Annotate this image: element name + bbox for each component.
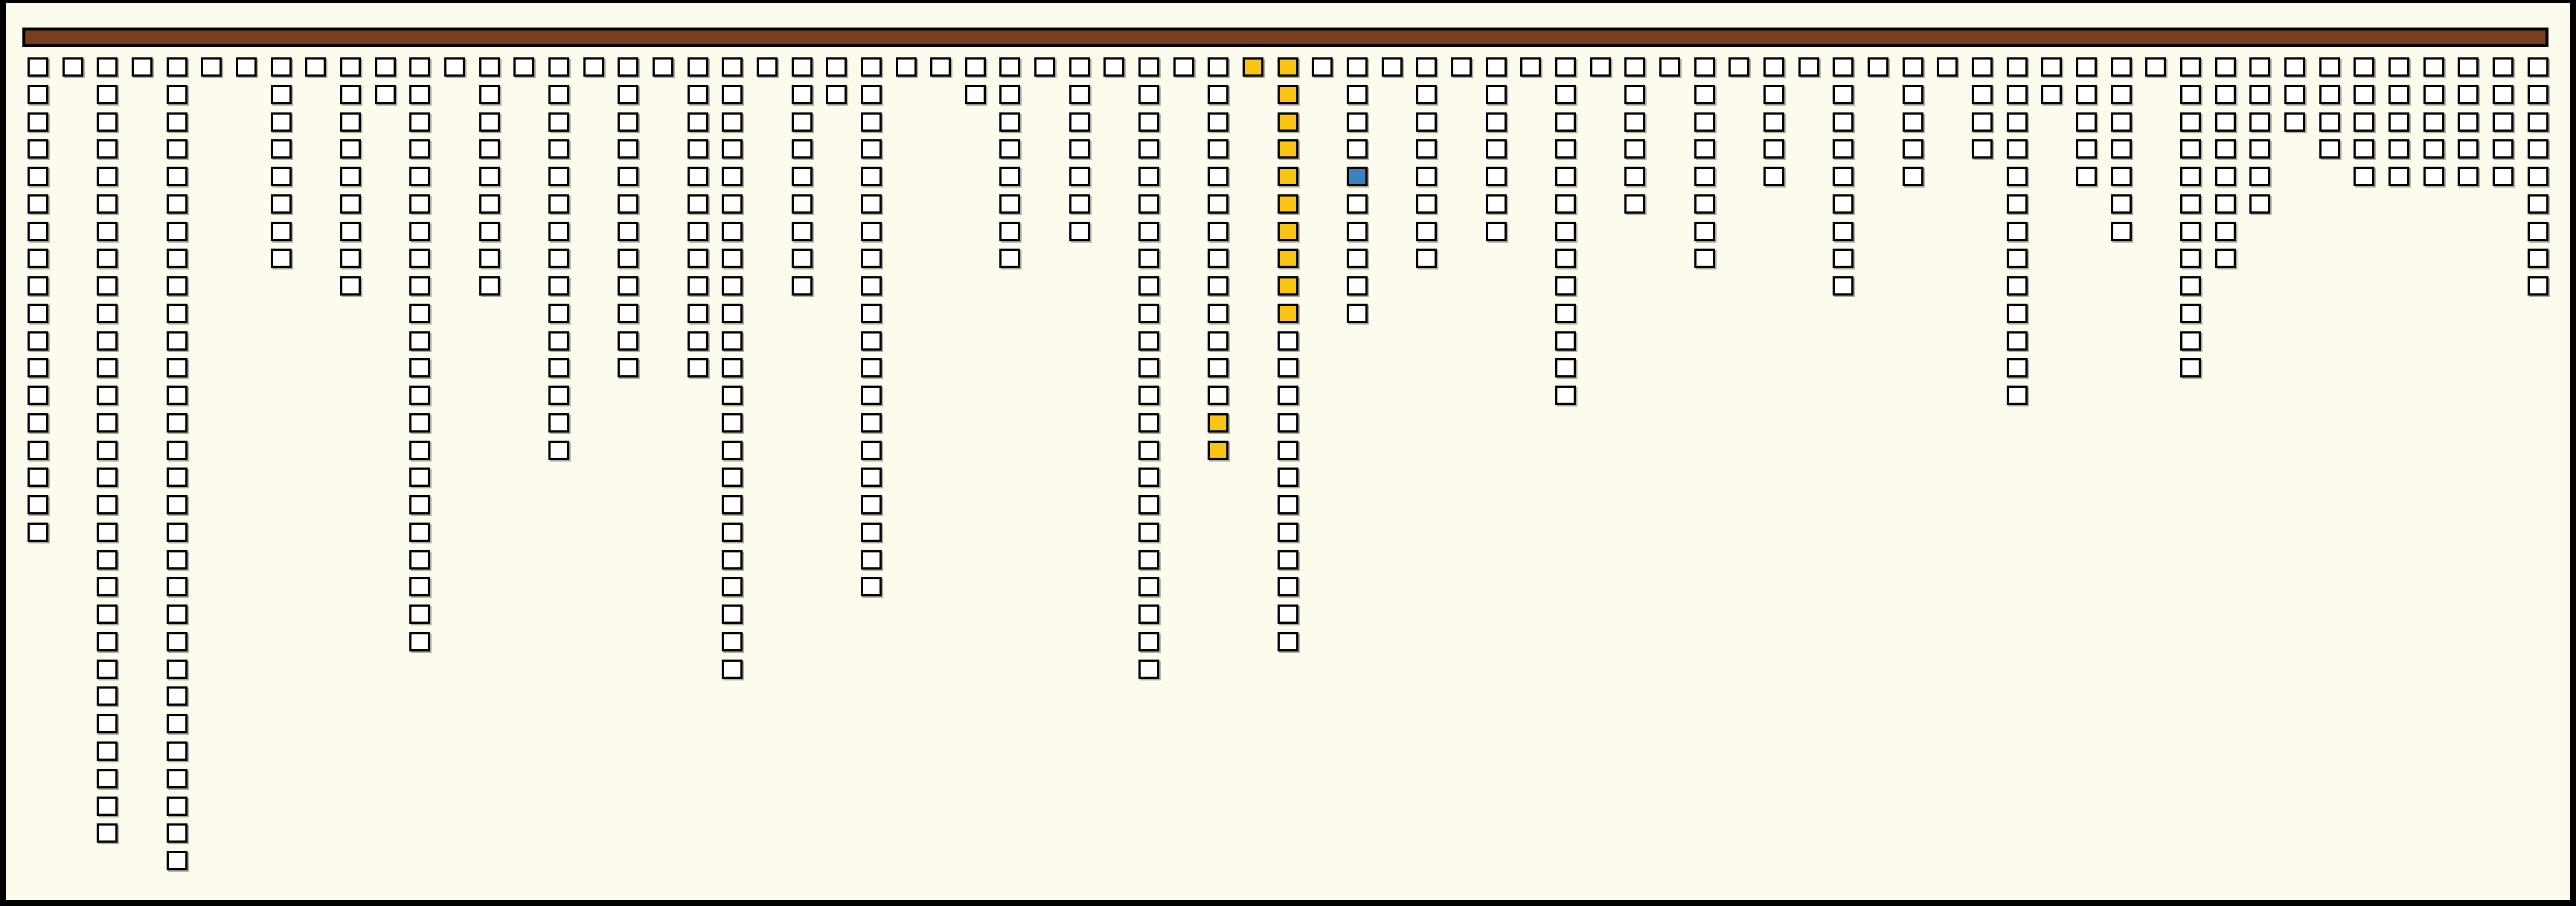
- grid-cell[interactable]: [2007, 249, 2028, 268]
- grid-cell[interactable]: [1208, 358, 1228, 377]
- grid-cell[interactable]: [792, 57, 813, 77]
- grid-cell[interactable]: [1555, 222, 1576, 241]
- grid-cell[interactable]: [722, 222, 743, 241]
- grid-cell[interactable]: [97, 331, 118, 351]
- grid-cell[interactable]: [1278, 468, 1298, 487]
- grid-cell[interactable]: [1278, 495, 1298, 514]
- grid-cell[interactable]: [861, 358, 882, 377]
- grid-cell[interactable]: [2319, 139, 2340, 159]
- grid-cell[interactable]: [2007, 304, 2028, 323]
- grid-cell[interactable]: [1278, 386, 1298, 405]
- grid-cell[interactable]: [999, 85, 1020, 104]
- grid-cell[interactable]: [167, 632, 188, 651]
- grid-cell[interactable]: [167, 714, 188, 733]
- grid-cell[interactable]: [1972, 85, 1993, 104]
- grid-cell[interactable]: [1173, 57, 1194, 77]
- grid-cell[interactable]: [2111, 222, 2132, 241]
- grid-cell[interactable]: [2180, 112, 2201, 132]
- grid-cell[interactable]: [618, 57, 638, 77]
- grid-cell[interactable]: [97, 686, 118, 706]
- grid-cell[interactable]: [97, 139, 118, 159]
- grid-cell[interactable]: [167, 331, 188, 351]
- grid-cell[interactable]: [861, 495, 882, 514]
- grid-cell[interactable]: [97, 741, 118, 761]
- grid-cell[interactable]: [861, 413, 882, 433]
- grid-cell[interactable]: [548, 222, 569, 241]
- grid-cell[interactable]: [861, 304, 882, 323]
- grid-cell[interactable]: [618, 85, 638, 104]
- grid-cell[interactable]: [2493, 57, 2513, 77]
- grid-cell[interactable]: [28, 331, 48, 351]
- grid-cell[interactable]: [999, 139, 1020, 159]
- grid-cell[interactable]: [722, 112, 743, 132]
- grid-cell[interactable]: [2284, 85, 2305, 104]
- grid-cell[interactable]: [2007, 222, 2028, 241]
- grid-cell[interactable]: [167, 249, 188, 268]
- grid-cell[interactable]: [167, 495, 188, 514]
- grid-cell[interactable]: [1903, 167, 1923, 186]
- grid-cell[interactable]: [1138, 604, 1159, 624]
- grid-cell[interactable]: [1278, 577, 1298, 596]
- grid-cell[interactable]: [2076, 139, 2097, 159]
- grid-cell[interactable]: [2076, 57, 2097, 77]
- grid-cell[interactable]: [1208, 386, 1228, 405]
- grid-cell[interactable]: [97, 550, 118, 570]
- grid-cell[interactable]: [97, 386, 118, 405]
- grid-cell[interactable]: [2528, 276, 2548, 296]
- grid-cell[interactable]: [1763, 57, 1784, 77]
- grid-cell[interactable]: [1138, 523, 1159, 542]
- grid-cell[interactable]: [688, 112, 708, 132]
- grid-cell[interactable]: [1416, 167, 1437, 186]
- grid-cell[interactable]: [861, 441, 882, 460]
- grid-cell[interactable]: [2528, 222, 2548, 241]
- grid-cell[interactable]: [97, 660, 118, 679]
- grid-cell[interactable]: [409, 550, 430, 570]
- grid-cell[interactable]: [2354, 112, 2374, 132]
- grid-cell[interactable]: [1278, 358, 1298, 377]
- grid-cell[interactable]: [97, 495, 118, 514]
- grid-cell[interactable]: [2319, 112, 2340, 132]
- grid-cell[interactable]: [1555, 57, 1576, 77]
- grid-cell[interactable]: [1278, 604, 1298, 624]
- top-bar[interactable]: [22, 28, 2548, 47]
- grid-cell[interactable]: [688, 139, 708, 159]
- grid-cell[interactable]: [340, 276, 361, 296]
- grid-cell[interactable]: [2215, 139, 2236, 159]
- grid-cell[interactable]: [722, 523, 743, 542]
- grid-cell[interactable]: [757, 57, 778, 77]
- grid-cell[interactable]: [1138, 386, 1159, 405]
- grid-cell[interactable]: [1555, 139, 1576, 159]
- grid-cell[interactable]: [167, 57, 188, 77]
- grid-cell[interactable]: [2493, 139, 2513, 159]
- grid-cell[interactable]: [722, 632, 743, 651]
- grid-cell[interactable]: [2007, 331, 2028, 351]
- grid-cell[interactable]: [97, 249, 118, 268]
- grid-cell[interactable]: [479, 112, 500, 132]
- grid-cell[interactable]: [167, 441, 188, 460]
- grid-cell[interactable]: [2111, 85, 2132, 104]
- grid-cell[interactable]: [1694, 167, 1715, 186]
- grid-cell[interactable]: [722, 358, 743, 377]
- grid-cell[interactable]: [1624, 194, 1645, 214]
- grid-cell[interactable]: [201, 57, 222, 77]
- grid-cell[interactable]: [167, 304, 188, 323]
- grid-cell[interactable]: [1138, 57, 1159, 77]
- grid-cell[interactable]: [1833, 194, 1853, 214]
- grid-cell[interactable]: [1138, 85, 1159, 104]
- grid-cell[interactable]: [63, 57, 83, 77]
- grid-cell[interactable]: [167, 194, 188, 214]
- grid-cell[interactable]: [2111, 167, 2132, 186]
- grid-cell[interactable]: [97, 632, 118, 651]
- grid-cell[interactable]: [340, 167, 361, 186]
- grid-cell[interactable]: [1138, 358, 1159, 377]
- grid-cell[interactable]: [2319, 85, 2340, 104]
- grid-cell[interactable]: [28, 112, 48, 132]
- highlighted-cell[interactable]: [1278, 276, 1298, 296]
- grid-cell[interactable]: [1555, 386, 1576, 405]
- grid-cell[interactable]: [167, 604, 188, 624]
- grid-cell[interactable]: [1278, 413, 1298, 433]
- grid-cell[interactable]: [2180, 358, 2201, 377]
- grid-cell[interactable]: [28, 358, 48, 377]
- grid-cell[interactable]: [2249, 139, 2270, 159]
- grid-cell[interactable]: [28, 249, 48, 268]
- grid-cell[interactable]: [409, 358, 430, 377]
- grid-cell[interactable]: [167, 523, 188, 542]
- grid-cell[interactable]: [2111, 57, 2132, 77]
- grid-cell[interactable]: [618, 249, 638, 268]
- grid-cell[interactable]: [1138, 194, 1159, 214]
- grid-cell[interactable]: [97, 577, 118, 596]
- grid-cell[interactable]: [409, 632, 430, 651]
- grid-cell[interactable]: [2423, 167, 2444, 186]
- grid-cell[interactable]: [722, 57, 743, 77]
- grid-cell[interactable]: [2180, 249, 2201, 268]
- grid-cell[interactable]: [1555, 276, 1576, 296]
- grid-cell[interactable]: [792, 222, 813, 241]
- grid-cell[interactable]: [1624, 112, 1645, 132]
- grid-cell[interactable]: [2215, 249, 2236, 268]
- highlighted-cell[interactable]: [1278, 222, 1298, 241]
- grid-cell[interactable]: [548, 304, 569, 323]
- grid-cell[interactable]: [1208, 167, 1228, 186]
- grid-cell[interactable]: [688, 304, 708, 323]
- grid-cell[interactable]: [1903, 57, 1923, 77]
- grid-cell[interactable]: [1138, 304, 1159, 323]
- grid-cell[interactable]: [1103, 57, 1124, 77]
- grid-cell[interactable]: [409, 577, 430, 596]
- grid-cell[interactable]: [2423, 139, 2444, 159]
- grid-cell[interactable]: [513, 57, 534, 77]
- grid-cell[interactable]: [548, 386, 569, 405]
- grid-cell[interactable]: [2528, 194, 2548, 214]
- grid-cell[interactable]: [409, 222, 430, 241]
- grid-cell[interactable]: [896, 57, 917, 77]
- grid-cell[interactable]: [305, 57, 326, 77]
- grid-cell[interactable]: [2354, 139, 2374, 159]
- grid-cell[interactable]: [1555, 112, 1576, 132]
- grid-cell[interactable]: [1138, 249, 1159, 268]
- grid-cell[interactable]: [340, 139, 361, 159]
- grid-cell[interactable]: [792, 112, 813, 132]
- grid-cell[interactable]: [792, 276, 813, 296]
- grid-cell[interactable]: [1763, 139, 1784, 159]
- grid-cell[interactable]: [97, 276, 118, 296]
- grid-cell[interactable]: [1138, 112, 1159, 132]
- grid-cell[interactable]: [2528, 85, 2548, 104]
- grid-cell[interactable]: [1972, 57, 1993, 77]
- grid-cell[interactable]: [1138, 276, 1159, 296]
- grid-cell[interactable]: [479, 57, 500, 77]
- grid-cell[interactable]: [1138, 468, 1159, 487]
- grid-cell[interactable]: [97, 57, 118, 77]
- grid-cell[interactable]: [97, 413, 118, 433]
- grid-cell[interactable]: [2249, 57, 2270, 77]
- grid-cell[interactable]: [2180, 167, 2201, 186]
- grid-cell[interactable]: [1833, 222, 1853, 241]
- grid-cell[interactable]: [1138, 660, 1159, 679]
- grid-cell[interactable]: [722, 577, 743, 596]
- grid-cell[interactable]: [2493, 85, 2513, 104]
- grid-cell[interactable]: [479, 249, 500, 268]
- grid-cell[interactable]: [167, 276, 188, 296]
- grid-cell[interactable]: [1138, 139, 1159, 159]
- grid-cell[interactable]: [2076, 85, 2097, 104]
- highlighted-cell[interactable]: [1278, 112, 1298, 132]
- grid-cell[interactable]: [1138, 222, 1159, 241]
- grid-cell[interactable]: [722, 468, 743, 487]
- grid-cell[interactable]: [2319, 57, 2340, 77]
- grid-cell[interactable]: [2145, 57, 2166, 77]
- grid-cell[interactable]: [167, 577, 188, 596]
- grid-cell[interactable]: [97, 823, 118, 843]
- grid-cell[interactable]: [409, 468, 430, 487]
- grid-cell[interactable]: [1833, 276, 1853, 296]
- grid-cell[interactable]: [2007, 386, 2028, 405]
- grid-cell[interactable]: [548, 167, 569, 186]
- grid-cell[interactable]: [97, 441, 118, 460]
- grid-cell[interactable]: [2458, 112, 2479, 132]
- grid-cell[interactable]: [1069, 194, 1090, 214]
- grid-cell[interactable]: [1069, 222, 1090, 241]
- grid-cell[interactable]: [1555, 167, 1576, 186]
- grid-cell[interactable]: [722, 413, 743, 433]
- grid-cell[interactable]: [861, 276, 882, 296]
- grid-cell[interactable]: [1833, 85, 1853, 104]
- grid-cell[interactable]: [97, 769, 118, 788]
- grid-cell[interactable]: [1208, 304, 1228, 323]
- grid-cell[interactable]: [618, 139, 638, 159]
- grid-cell[interactable]: [409, 167, 430, 186]
- grid-cell[interactable]: [1069, 167, 1090, 186]
- grid-cell[interactable]: [167, 468, 188, 487]
- grid-cell[interactable]: [2111, 139, 2132, 159]
- grid-cell[interactable]: [722, 550, 743, 570]
- grid-cell[interactable]: [28, 276, 48, 296]
- grid-cell[interactable]: [479, 276, 500, 296]
- grid-cell[interactable]: [999, 249, 1020, 268]
- grid-cell[interactable]: [688, 167, 708, 186]
- grid-cell[interactable]: [618, 276, 638, 296]
- grid-cell[interactable]: [409, 304, 430, 323]
- highlighted-cell[interactable]: [1278, 139, 1298, 159]
- grid-cell[interactable]: [826, 85, 847, 104]
- grid-cell[interactable]: [2388, 167, 2409, 186]
- grid-cell[interactable]: [548, 276, 569, 296]
- grid-cell[interactable]: [479, 194, 500, 214]
- grid-cell[interactable]: [340, 57, 361, 77]
- grid-cell[interactable]: [1278, 441, 1298, 460]
- grid-cell[interactable]: [2249, 194, 2270, 214]
- grid-cell[interactable]: [861, 85, 882, 104]
- grid-cell[interactable]: [722, 194, 743, 214]
- highlighted-cell[interactable]: [1278, 304, 1298, 323]
- grid-cell[interactable]: [1590, 57, 1611, 77]
- grid-cell[interactable]: [1347, 57, 1368, 77]
- grid-cell[interactable]: [1903, 112, 1923, 132]
- grid-cell[interactable]: [965, 85, 986, 104]
- grid-cell[interactable]: [1624, 57, 1645, 77]
- grid-cell[interactable]: [409, 249, 430, 268]
- grid-cell[interactable]: [548, 139, 569, 159]
- grid-cell[interactable]: [1416, 249, 1437, 268]
- grid-cell[interactable]: [1416, 222, 1437, 241]
- grid-cell[interactable]: [2215, 85, 2236, 104]
- grid-cell[interactable]: [722, 331, 743, 351]
- grid-cell[interactable]: [548, 413, 569, 433]
- grid-cell[interactable]: [548, 57, 569, 77]
- grid-cell[interactable]: [2458, 57, 2479, 77]
- grid-cell[interactable]: [271, 249, 292, 268]
- grid-cell[interactable]: [409, 194, 430, 214]
- grid-cell[interactable]: [1833, 139, 1853, 159]
- grid-cell[interactable]: [97, 523, 118, 542]
- grid-cell[interactable]: [479, 139, 500, 159]
- grid-cell[interactable]: [548, 358, 569, 377]
- grid-cell[interactable]: [1138, 550, 1159, 570]
- grid-cell[interactable]: [1694, 249, 1715, 268]
- grid-cell[interactable]: [1763, 85, 1784, 104]
- grid-cell[interactable]: [2423, 85, 2444, 104]
- grid-cell[interactable]: [409, 85, 430, 104]
- grid-cell[interactable]: [2528, 139, 2548, 159]
- grid-cell[interactable]: [1416, 194, 1437, 214]
- grid-cell[interactable]: [1138, 331, 1159, 351]
- grid-cell[interactable]: [792, 249, 813, 268]
- grid-cell[interactable]: [1416, 57, 1437, 77]
- grid-cell[interactable]: [1694, 139, 1715, 159]
- grid-cell[interactable]: [2528, 249, 2548, 268]
- grid-cell[interactable]: [1694, 112, 1715, 132]
- grid-cell[interactable]: [1486, 139, 1507, 159]
- grid-cell[interactable]: [409, 57, 430, 77]
- grid-cell[interactable]: [2388, 112, 2409, 132]
- grid-cell[interactable]: [722, 441, 743, 460]
- grid-cell[interactable]: [1347, 249, 1368, 268]
- grid-cell[interactable]: [409, 276, 430, 296]
- grid-cell[interactable]: [2007, 276, 2028, 296]
- grid-cell[interactable]: [2180, 276, 2201, 296]
- grid-cell[interactable]: [618, 304, 638, 323]
- grid-cell[interactable]: [548, 441, 569, 460]
- grid-cell[interactable]: [2493, 112, 2513, 132]
- grid-cell[interactable]: [2423, 57, 2444, 77]
- grid-cell[interactable]: [1624, 85, 1645, 104]
- grid-cell[interactable]: [1312, 57, 1333, 77]
- grid-cell[interactable]: [2007, 57, 2028, 77]
- grid-cell[interactable]: [28, 57, 48, 77]
- grid-cell[interactable]: [722, 276, 743, 296]
- grid-cell[interactable]: [2423, 112, 2444, 132]
- grid-cell[interactable]: [722, 139, 743, 159]
- grid-cell[interactable]: [271, 112, 292, 132]
- grid-cell[interactable]: [861, 112, 882, 132]
- grid-cell[interactable]: [167, 769, 188, 788]
- grid-cell[interactable]: [2215, 57, 2236, 77]
- grid-cell[interactable]: [1486, 167, 1507, 186]
- grid-cell[interactable]: [167, 823, 188, 843]
- grid-cell[interactable]: [2249, 167, 2270, 186]
- grid-cell[interactable]: [2458, 167, 2479, 186]
- grid-cell[interactable]: [97, 222, 118, 241]
- grid-cell[interactable]: [2111, 194, 2132, 214]
- grid-cell[interactable]: [167, 167, 188, 186]
- grid-cell[interactable]: [618, 358, 638, 377]
- grid-cell[interactable]: [1138, 441, 1159, 460]
- grid-cell[interactable]: [1208, 194, 1228, 214]
- grid-cell[interactable]: [28, 167, 48, 186]
- grid-cell[interactable]: [167, 413, 188, 433]
- grid-cell[interactable]: [2007, 358, 2028, 377]
- grid-cell[interactable]: [999, 194, 1020, 214]
- grid-cell[interactable]: [999, 222, 1020, 241]
- grid-cell[interactable]: [548, 194, 569, 214]
- grid-cell[interactable]: [409, 139, 430, 159]
- grid-cell[interactable]: [2249, 85, 2270, 104]
- grid-cell[interactable]: [792, 85, 813, 104]
- grid-cell[interactable]: [1208, 331, 1228, 351]
- grid-cell[interactable]: [2215, 222, 2236, 241]
- grid-cell[interactable]: [1728, 57, 1749, 77]
- grid-cell[interactable]: [167, 222, 188, 241]
- grid-cell[interactable]: [409, 112, 430, 132]
- grid-cell[interactable]: [1416, 139, 1437, 159]
- grid-cell[interactable]: [28, 304, 48, 323]
- grid-cell[interactable]: [618, 167, 638, 186]
- grid-cell[interactable]: [2007, 139, 2028, 159]
- grid-cell[interactable]: [1659, 57, 1680, 77]
- grid-cell[interactable]: [2528, 57, 2548, 77]
- grid-cell[interactable]: [340, 222, 361, 241]
- grid-cell[interactable]: [1138, 413, 1159, 433]
- grid-cell[interactable]: [1347, 85, 1368, 104]
- grid-cell[interactable]: [618, 222, 638, 241]
- grid-cell[interactable]: [2180, 85, 2201, 104]
- grid-cell[interactable]: [2458, 139, 2479, 159]
- grid-cell[interactable]: [167, 358, 188, 377]
- grid-cell[interactable]: [28, 139, 48, 159]
- grid-cell[interactable]: [2249, 112, 2270, 132]
- grid-cell[interactable]: [1798, 57, 1819, 77]
- grid-cell[interactable]: [97, 604, 118, 624]
- grid-cell[interactable]: [167, 851, 188, 870]
- grid-cell[interactable]: [1833, 57, 1853, 77]
- grid-cell[interactable]: [409, 413, 430, 433]
- grid-cell[interactable]: [409, 523, 430, 542]
